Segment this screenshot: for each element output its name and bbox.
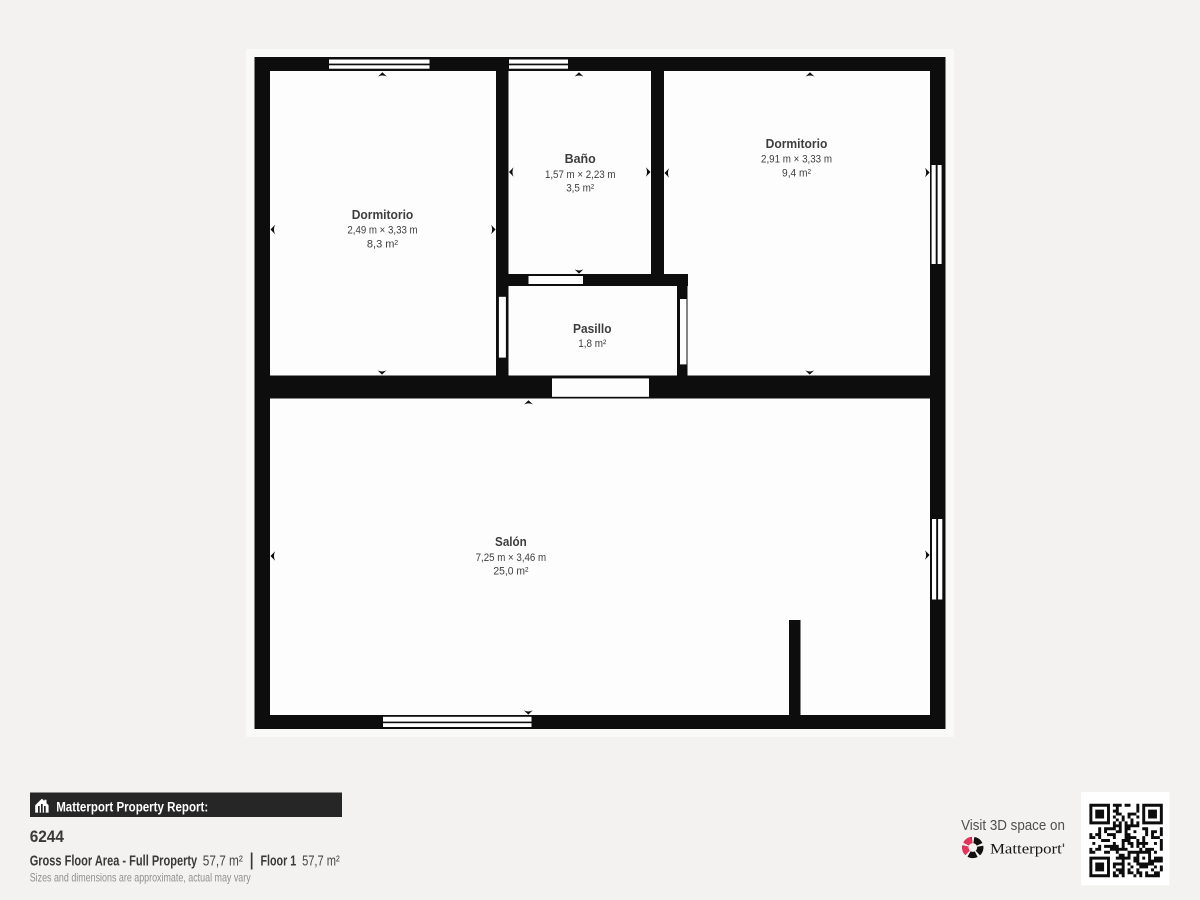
svg-text:9,4 m²: 9,4 m² — [782, 167, 811, 179]
svg-text:Visit 3D space on: Visit 3D space on — [961, 818, 1065, 834]
svg-text:Dormitorio: Dormitorio — [766, 136, 828, 151]
svg-text:1,57 m × 2,23 m: 1,57 m × 2,23 m — [545, 169, 616, 181]
svg-text:57,7 m²: 57,7 m² — [302, 853, 340, 869]
svg-text:Gross Floor Area - Full Proper: Gross Floor Area - Full Property — [30, 853, 198, 869]
svg-text:6244: 6244 — [30, 827, 65, 846]
svg-text:3,5 m²: 3,5 m² — [566, 183, 594, 195]
svg-text:Dormitorio: Dormitorio — [352, 207, 414, 222]
svg-text:Pasillo: Pasillo — [573, 321, 612, 336]
svg-text:Sizes and dimensions are appro: Sizes and dimensions are approximate, ac… — [30, 870, 251, 884]
svg-text:Baño: Baño — [565, 151, 596, 166]
svg-text:57,7 m²: 57,7 m² — [203, 853, 243, 869]
svg-text:2,91 m × 3,33 m: 2,91 m × 3,33 m — [761, 153, 832, 165]
svg-text:1,8 m²: 1,8 m² — [578, 338, 606, 350]
svg-text:Matterport Property Report:: Matterport Property Report: — [56, 800, 208, 815]
svg-text:Floor 1: Floor 1 — [261, 853, 297, 869]
svg-text:2,49 m × 3,33 m: 2,49 m × 3,33 m — [347, 224, 417, 236]
svg-text:Salón: Salón — [495, 534, 527, 549]
svg-text:7,25 m × 3,46 m: 7,25 m × 3,46 m — [476, 552, 547, 564]
svg-text:Matterport: Matterport — [990, 841, 1063, 858]
svg-text:25,0 m²: 25,0 m² — [493, 566, 528, 578]
svg-text:8,3 m²: 8,3 m² — [367, 238, 399, 250]
